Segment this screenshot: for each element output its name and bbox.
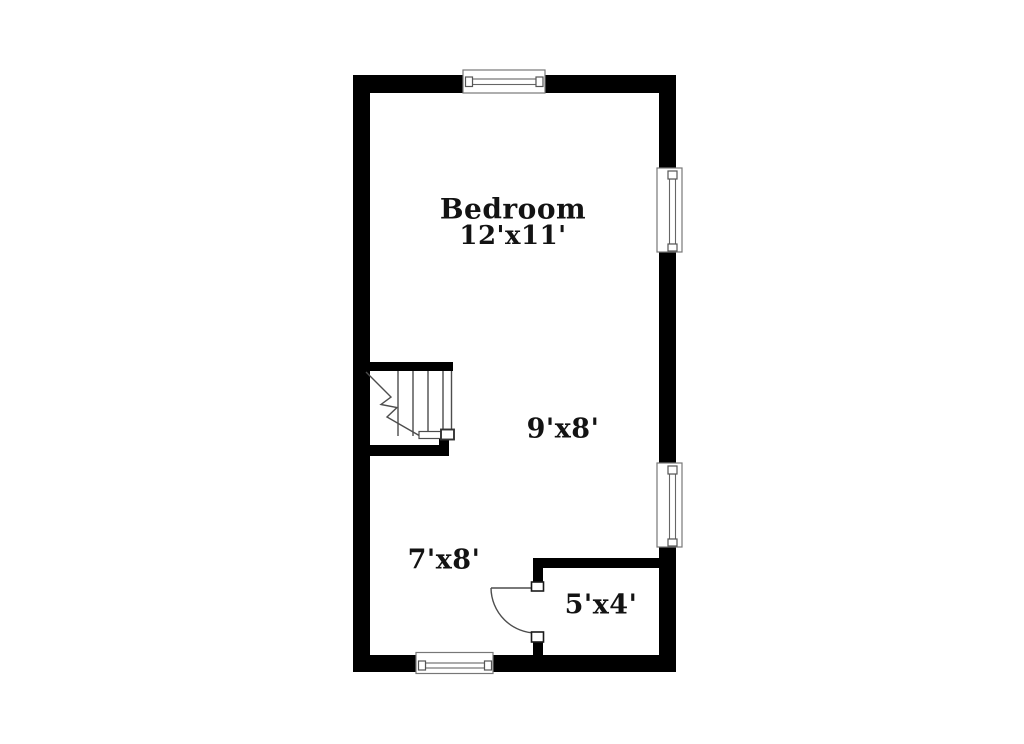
stair-direction-break-line	[366, 372, 420, 436]
window-stop	[668, 539, 677, 546]
window-stop	[419, 661, 426, 670]
stair-bottom-rail	[419, 432, 441, 439]
window-pane	[670, 474, 676, 539]
window-top	[463, 70, 545, 93]
closet-door	[491, 582, 544, 642]
window-stop	[668, 466, 677, 474]
window-right-lower	[657, 463, 682, 547]
door-jamb-lower	[532, 632, 544, 642]
wall-stair-top	[364, 362, 453, 371]
window-pane	[670, 179, 676, 244]
window-stop	[485, 661, 492, 670]
wall-stair-bottom	[364, 445, 449, 456]
window-stop	[466, 77, 473, 87]
window-stop	[668, 171, 677, 179]
room-dimensions-bedroom: 12'x11'	[459, 221, 566, 251]
door-swing-arc	[491, 588, 537, 633]
wall-closet-top	[533, 558, 660, 568]
room-dimensions-5x4: 5'x4'	[565, 590, 638, 621]
floor-plan-drawing	[0, 0, 1024, 744]
wall-right	[659, 75, 676, 672]
room-dimensions-9x8: 9'x8'	[527, 414, 600, 445]
wall-closet-upper-stub	[533, 568, 543, 583]
window-pane	[426, 663, 485, 668]
door-jamb-upper	[532, 582, 544, 591]
wall-closet-lower-stub	[533, 642, 543, 656]
wall-bottom	[353, 655, 676, 672]
window-right-upper	[657, 168, 682, 252]
window-bottom	[416, 653, 493, 674]
room-dimensions-7x8: 7'x8'	[408, 545, 481, 576]
staircase	[366, 371, 454, 440]
window-stop	[536, 77, 543, 87]
window-pane	[473, 79, 537, 85]
outer-walls	[353, 75, 676, 672]
stair-newel-post	[441, 430, 454, 440]
window-stop	[668, 244, 677, 251]
floor-plan-page: Bedroom 12'x11' 9'x8' 7'x8' 5'x4'	[0, 0, 1024, 744]
